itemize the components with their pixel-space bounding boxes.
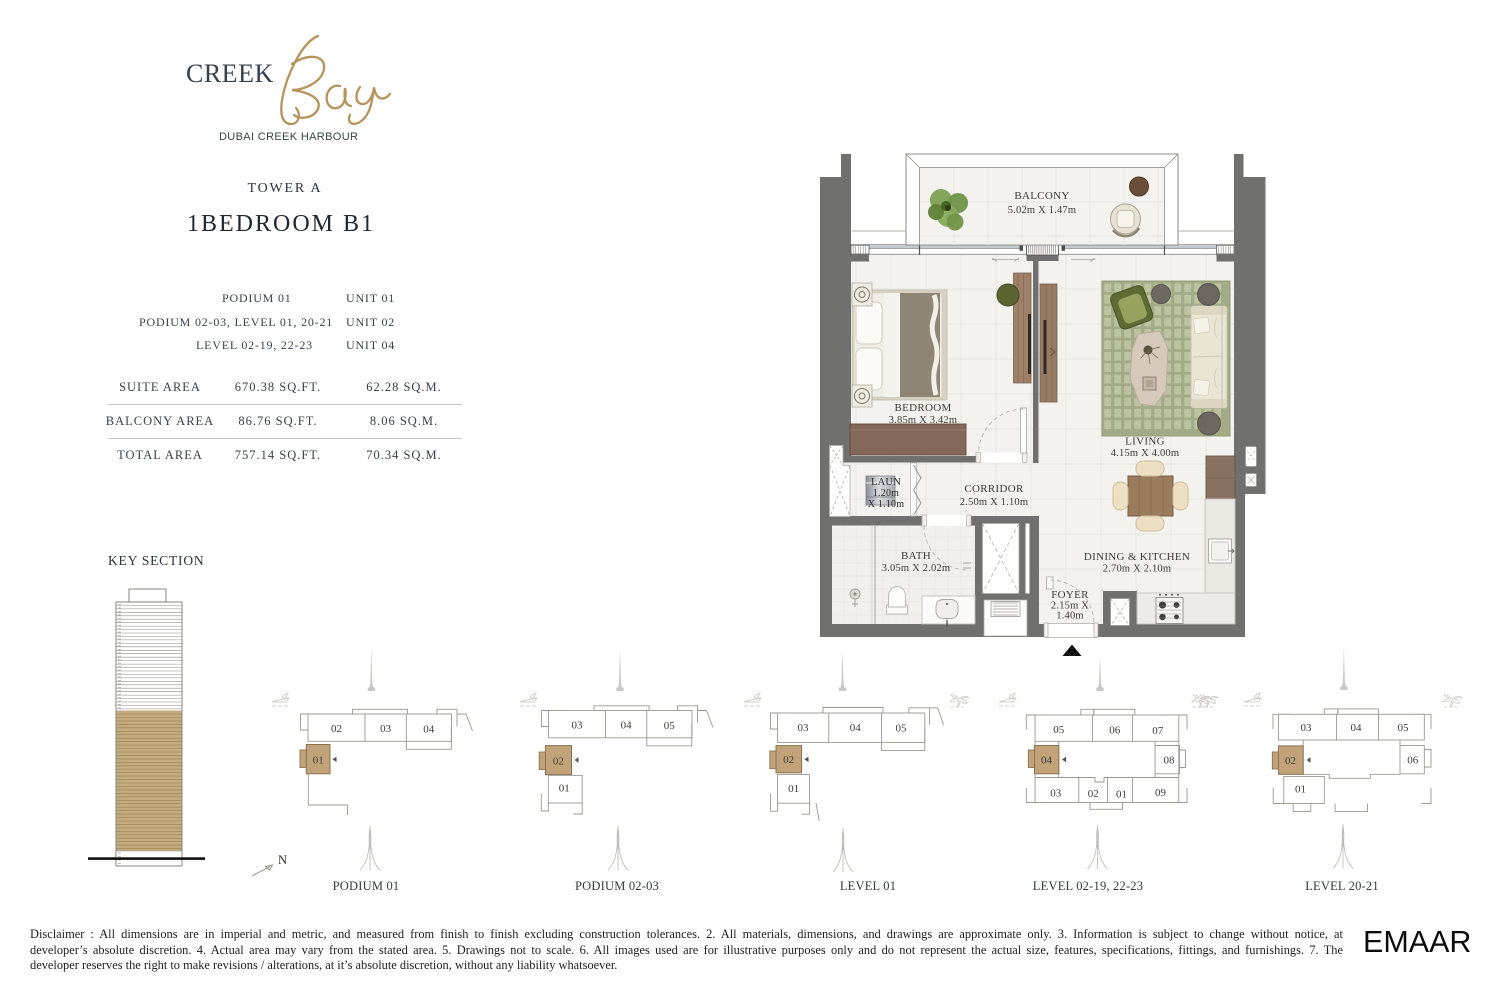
- svg-text:04: 04: [423, 724, 435, 736]
- svg-text:DINING & KITCHEN: DINING & KITCHEN: [1084, 551, 1190, 563]
- svg-text:1.20m: 1.20m: [873, 488, 899, 499]
- svg-text:08: 08: [1164, 755, 1176, 767]
- svg-text:01: 01: [1295, 784, 1306, 796]
- svg-text:02: 02: [1088, 788, 1099, 800]
- svg-text:X 1.10m: X 1.10m: [868, 499, 904, 510]
- svg-text:04: 04: [621, 720, 633, 732]
- svg-text:03: 03: [380, 723, 392, 735]
- svg-text:5.02m X 1.47m: 5.02m X 1.47m: [1008, 205, 1077, 216]
- svg-text:LIVING: LIVING: [1125, 436, 1165, 448]
- svg-text:PODIUM 02-03: PODIUM 02-03: [575, 879, 659, 893]
- svg-text:01: 01: [788, 783, 799, 795]
- svg-text:01: 01: [1116, 789, 1127, 801]
- svg-text:2.50m X 1.10m: 2.50m X 1.10m: [960, 497, 1029, 508]
- svg-text:05: 05: [1053, 724, 1065, 736]
- svg-text:2.70m X 2.10m: 2.70m X 2.10m: [1103, 564, 1172, 575]
- svg-text:BATH: BATH: [901, 550, 931, 562]
- svg-text:02: 02: [1285, 755, 1296, 767]
- svg-text:4.15m X 4.00m: 4.15m X 4.00m: [1111, 448, 1180, 459]
- svg-text:02: 02: [331, 723, 342, 735]
- svg-text:N: N: [278, 853, 287, 867]
- svg-text:04: 04: [850, 722, 862, 734]
- svg-text:04: 04: [1351, 722, 1363, 734]
- svg-text:LEVEL 01: LEVEL 01: [840, 879, 896, 893]
- svg-text:03: 03: [1050, 787, 1062, 799]
- svg-text:02: 02: [553, 756, 564, 768]
- svg-text:BEDROOM: BEDROOM: [894, 402, 951, 414]
- svg-text:09: 09: [1155, 787, 1167, 799]
- svg-text:1.40m: 1.40m: [1056, 611, 1084, 622]
- svg-text:LEVEL 20-21: LEVEL 20-21: [1305, 879, 1379, 893]
- svg-text:05: 05: [1398, 722, 1410, 734]
- svg-text:3.05m X 2.02m: 3.05m X 2.02m: [882, 563, 951, 574]
- svg-text:05: 05: [664, 720, 676, 732]
- svg-text:PODIUM 01: PODIUM 01: [333, 879, 400, 893]
- svg-text:01: 01: [559, 782, 570, 794]
- svg-text:03: 03: [798, 722, 810, 734]
- svg-text:04: 04: [1041, 755, 1053, 767]
- svg-text:03: 03: [572, 720, 584, 732]
- svg-text:02: 02: [783, 754, 794, 766]
- svg-text:LEVEL 02-19, 22-23: LEVEL 02-19, 22-23: [1033, 879, 1143, 893]
- svg-text:07: 07: [1152, 725, 1164, 737]
- svg-text:LAUN: LAUN: [871, 477, 901, 488]
- svg-text:05: 05: [896, 722, 908, 734]
- svg-text:01: 01: [313, 755, 324, 767]
- svg-text:BALCONY: BALCONY: [1014, 190, 1069, 202]
- svg-text:3.85m X 3.42m: 3.85m X 3.42m: [889, 415, 958, 426]
- svg-text:06: 06: [1109, 725, 1121, 737]
- svg-text:06: 06: [1407, 755, 1419, 767]
- svg-text:CORRIDOR: CORRIDOR: [964, 483, 1024, 495]
- svg-text:03: 03: [1301, 722, 1313, 734]
